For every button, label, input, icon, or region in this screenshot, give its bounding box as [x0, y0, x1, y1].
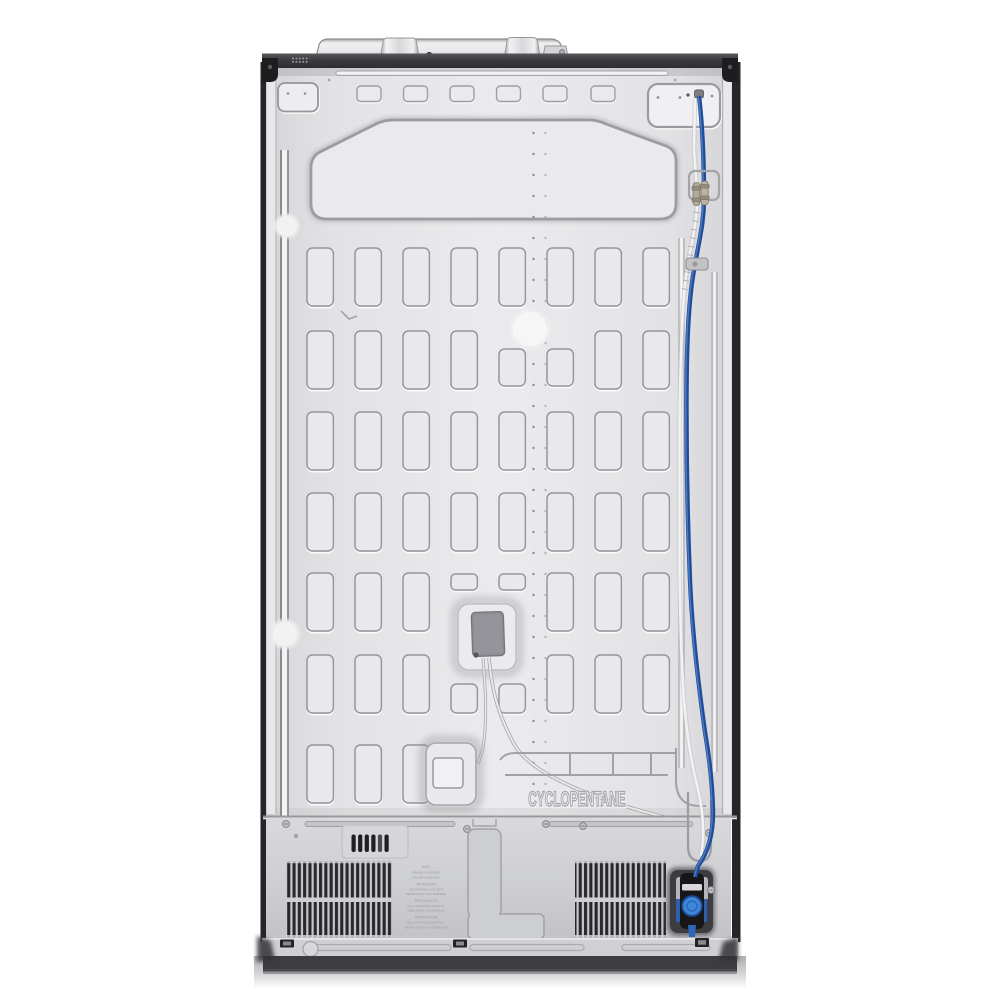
svg-text:PRECAUTION: PRECAUTION	[415, 916, 438, 920]
svg-text:ATTENTION: ATTENTION	[417, 883, 437, 887]
svg-text:SEUL UN TECHNICIEN PEUT: SEUL UN TECHNICIEN PEUT	[407, 921, 445, 925]
svg-text:DEBE ABRIR LOS PANELES: DEBE ABRIR LOS PANELES	[408, 909, 445, 913]
svg-text:AVIS: AVIS	[422, 865, 431, 869]
svg-text:GAZ INFLAMMABLE: GAZ INFLAMMABLE	[412, 876, 439, 880]
svg-text:PRECAUCION: PRECAUCION	[415, 899, 438, 903]
svg-text:RISQUE D INCENDIE: RISQUE D INCENDIE	[412, 871, 441, 875]
svg-text:CYCLOPENTANE: CYCLOPENTANE	[528, 786, 625, 811]
svg-text:NE PAS OUVRIR LA CONNEXION: NE PAS OUVRIR LA CONNEXION	[404, 926, 447, 930]
svg-text:REFRIGERANT INFLAMMABLE: REFRIGERANT INFLAMMABLE	[406, 892, 447, 896]
svg-text:SOLO PERSONAL TECNICO: SOLO PERSONAL TECNICO	[408, 904, 446, 908]
svg-text:CET APPAREIL CONTIENT: CET APPAREIL CONTIENT	[409, 888, 444, 892]
